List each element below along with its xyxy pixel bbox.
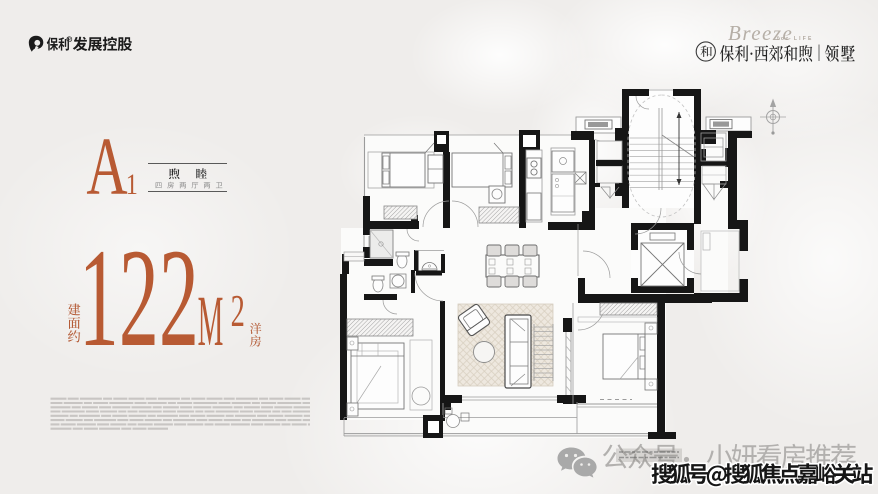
svg-text:2: 2 <box>231 286 245 336</box>
svg-text:A: A <box>86 122 127 213</box>
svg-text:M: M <box>198 281 224 361</box>
svg-text:122: 122 <box>79 220 199 376</box>
svg-text:1: 1 <box>126 168 138 201</box>
